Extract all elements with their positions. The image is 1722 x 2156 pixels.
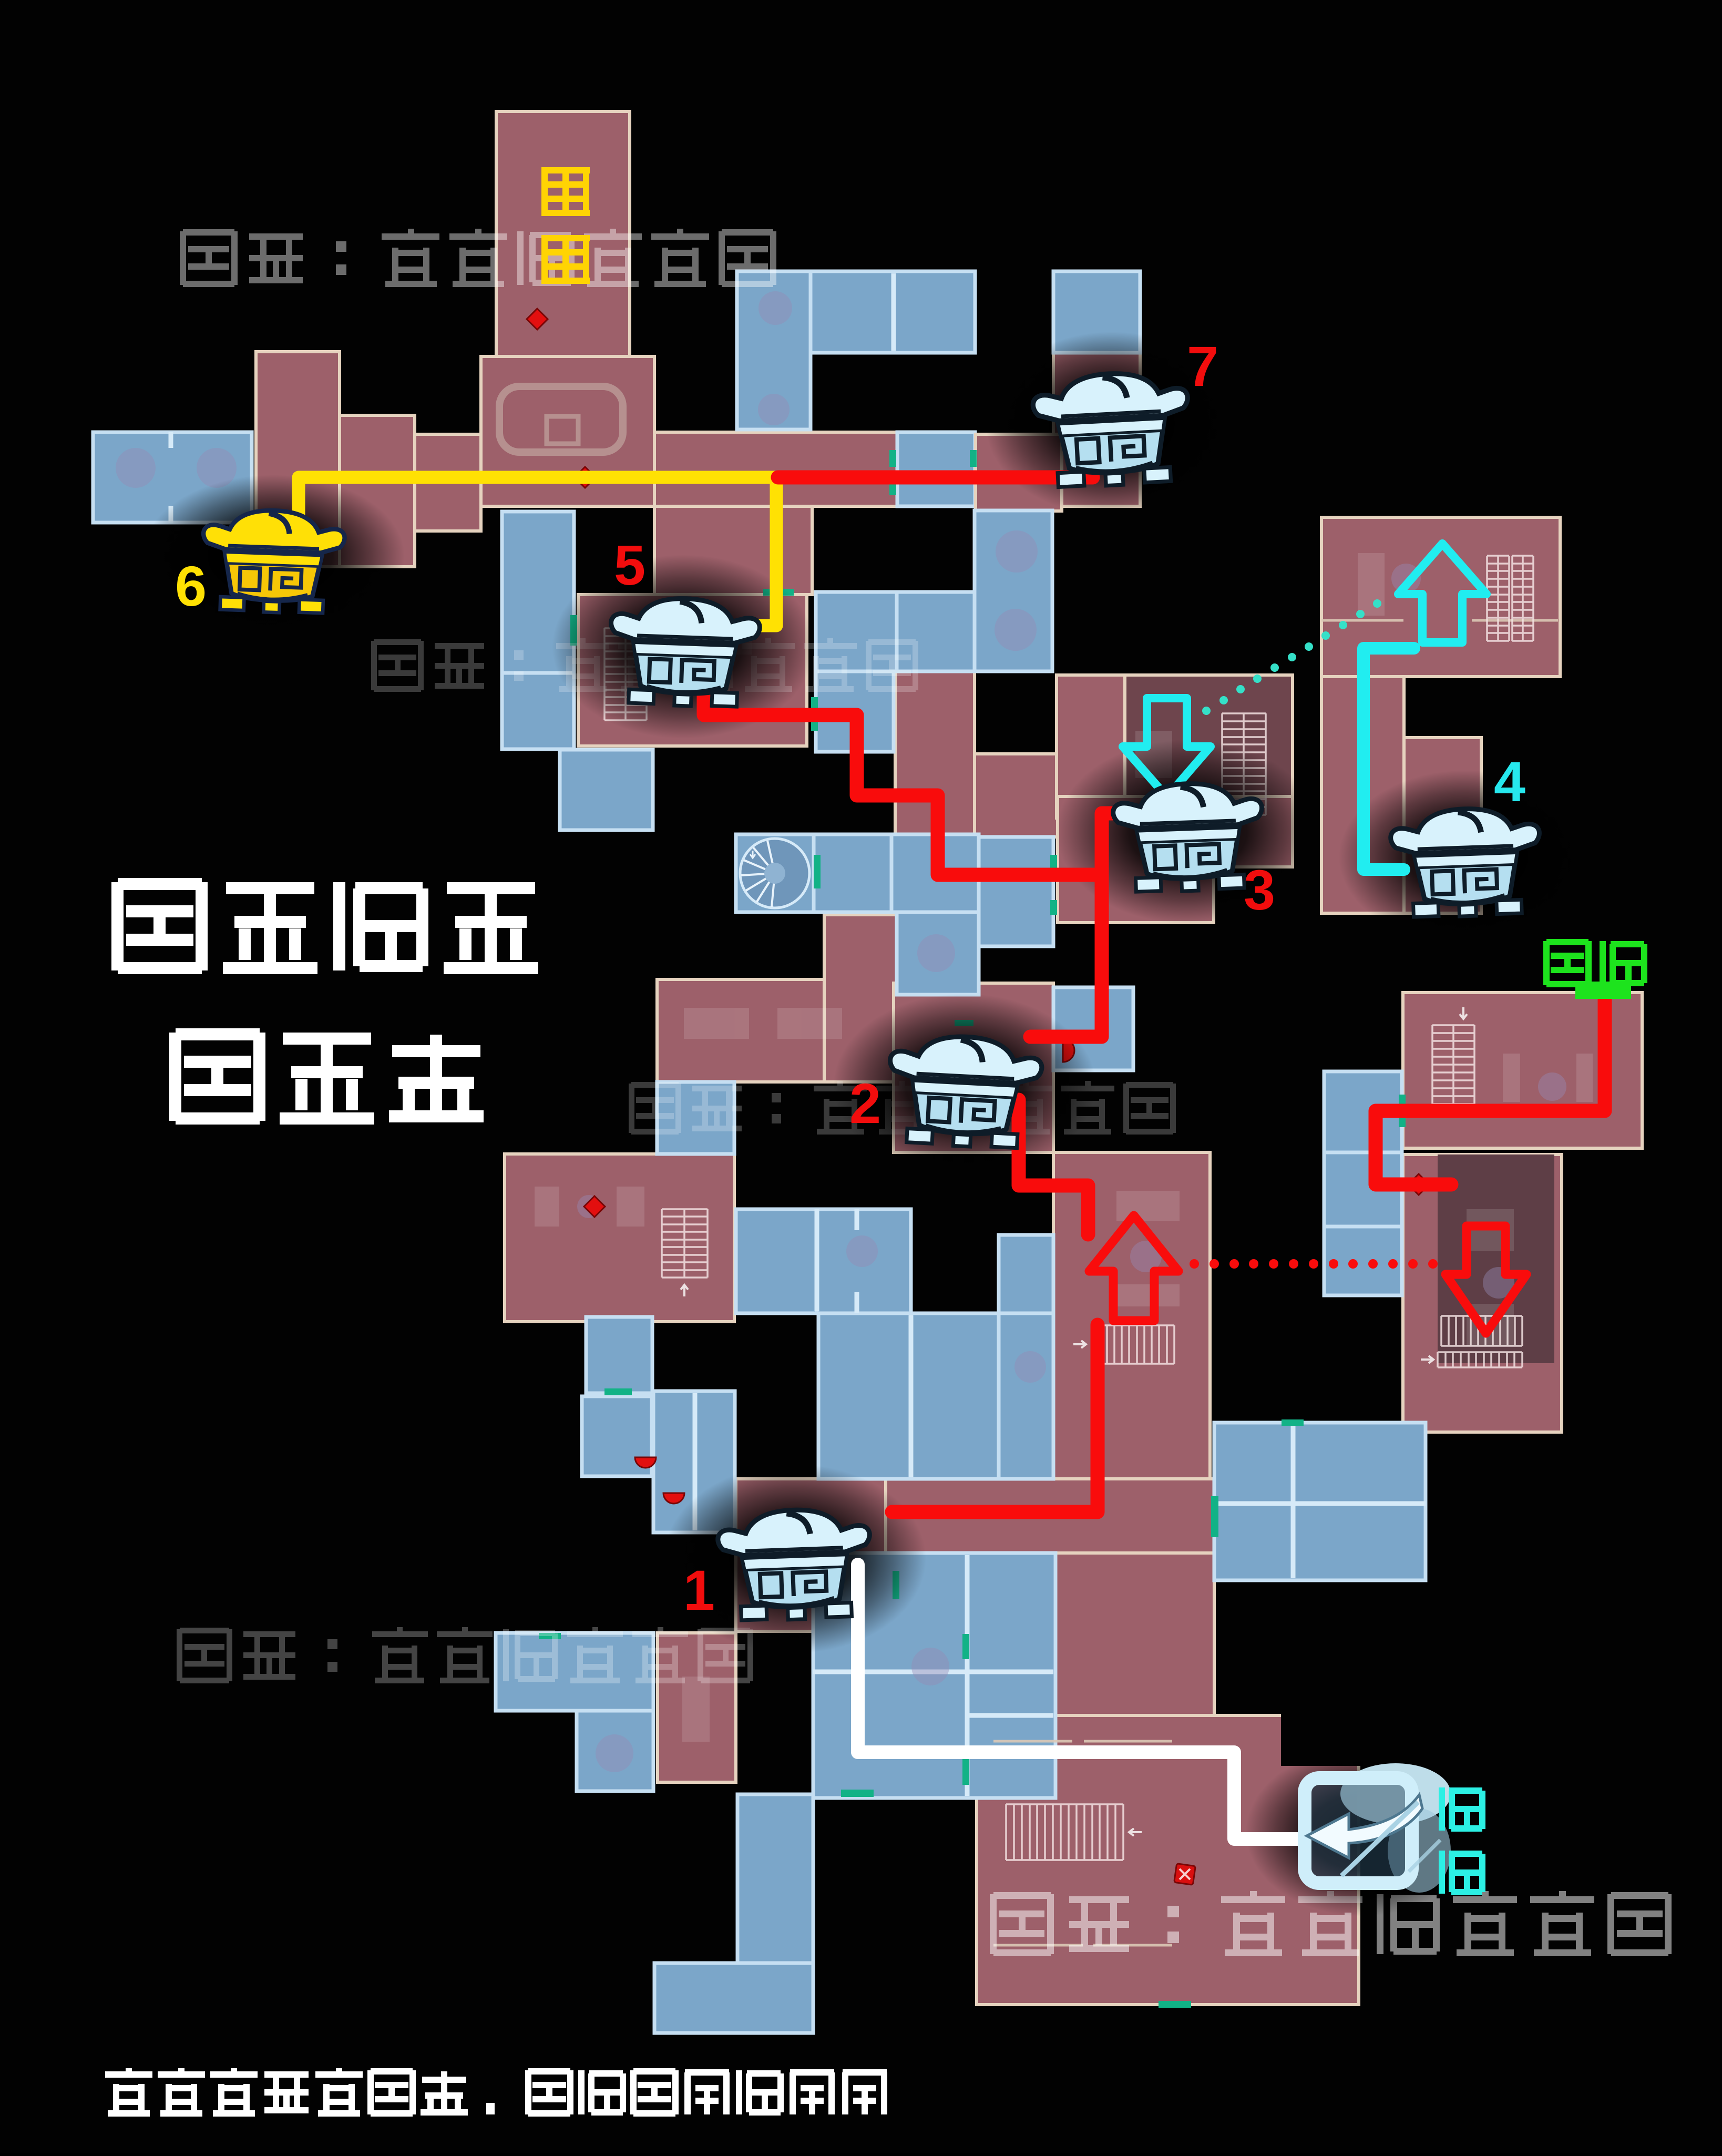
svg-text:7: 7 xyxy=(1187,334,1218,398)
svg-text:4: 4 xyxy=(1494,750,1525,813)
svg-text:5: 5 xyxy=(614,533,645,597)
svg-text:3: 3 xyxy=(1244,858,1275,922)
svg-text:1: 1 xyxy=(683,1558,715,1622)
svg-text:2: 2 xyxy=(849,1071,881,1135)
svg-text:6: 6 xyxy=(175,554,207,618)
